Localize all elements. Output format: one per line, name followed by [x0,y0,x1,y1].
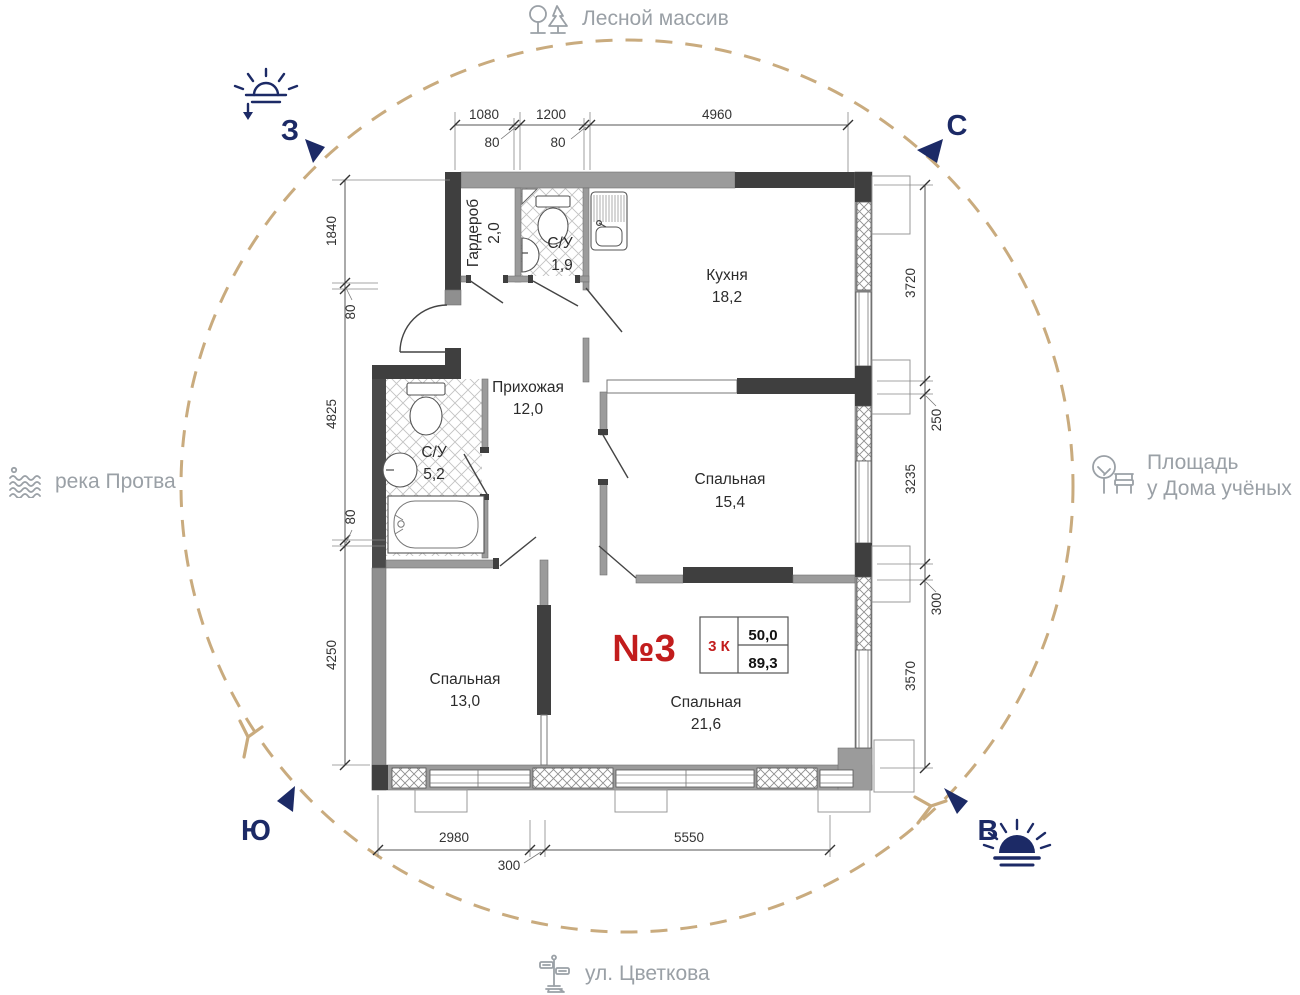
room-name: Кухня [706,267,747,284]
compass-arrow-south-icon [277,786,295,812]
dim-label: 5550 [674,830,704,845]
dim-label: 4250 [324,640,339,670]
compass-south-label: Ю [241,815,271,847]
dimensions-right: 3720 250 3235 300 3570 [874,180,944,773]
dim-label: 1200 [536,107,566,122]
room-area: 21,6 [691,716,721,733]
compass-north-label: С [947,110,968,142]
room-name: Спальная [695,471,766,488]
total-area: 89,3 [748,655,777,672]
river-icon [8,466,44,498]
landmark-label: Площадь у Дома учёных [1147,450,1292,503]
compass-east-label: В [978,815,999,847]
room-area: 2,0 [486,222,503,244]
bedroom-15-door [603,435,628,478]
toilet-bowl [410,397,442,435]
landmark-label: река Протва [55,469,176,495]
dim-label: 80 [484,135,499,150]
branch-icon [915,797,946,823]
bedroom-13-door [500,537,536,566]
landmark-east: Площадь у Дома учёных [1088,450,1292,503]
dim-label: 2980 [439,830,469,845]
dim-label: 250 [929,409,944,432]
room-name: С/У [421,444,447,461]
dim-label: 80 [550,135,565,150]
apartment-badge: №3 3 К 50,0 89,3 [612,617,788,673]
site-plan-page: З С Ю В [0,0,1300,995]
dim-label: 300 [929,593,944,616]
room-area: 18,2 [712,289,742,306]
dimensions-top: 1080 1200 4960 80 80 [450,107,853,172]
landmark-label: ул. Цветкова [585,961,710,987]
wardrobe-door [469,280,503,303]
room-area: 13,0 [450,693,481,710]
room-name: Прихожая [492,379,564,396]
dim-label: 80 [343,304,358,319]
dim-label: 1840 [324,216,339,246]
wc-small-door [533,281,578,306]
room-area: 15,4 [715,494,746,511]
compass-arrow-west-icon [305,139,325,163]
kitchen-sink [591,192,627,250]
dim-label: 300 [498,858,521,873]
room-name: Спальная [671,694,742,711]
toilet-tank [536,196,570,207]
dim-label: 4960 [702,107,732,122]
dim-label: 4825 [324,399,339,429]
landmark-south: ул. Цветкова [538,954,710,994]
toilet-tank [407,383,445,395]
dim-label: 1080 [469,107,499,122]
room-name: С/У [547,235,573,252]
dim-label: 3235 [903,464,918,494]
living-area: 50,0 [748,627,777,644]
dim-label: 80 [343,509,358,524]
room-area: 1,9 [551,257,573,274]
street-sign-icon [538,954,574,994]
room-name: Гардероб [465,199,482,267]
room-area: 12,0 [513,401,544,418]
compass: З С Ю В [235,69,1050,865]
kitchen-door [586,288,622,332]
floor-plan: Гардероб 2,0 С/У 1,9 Кухня 18,2 Прихожая… [324,107,944,873]
apartment-number: №3 [612,628,676,670]
park-bench-icon [1088,453,1136,499]
room-area: 5,2 [423,466,445,483]
room-name: Спальная [430,671,501,688]
dim-label: 3570 [903,661,918,691]
compass-west-label: З [281,115,299,147]
sunset-icon [235,69,297,120]
landmark-west: река Протва [8,466,176,498]
landmark-label: Лесной массив [582,6,729,32]
landmark-north: Лесной массив [527,2,729,36]
rooms-count: 3 К [708,638,731,655]
dim-label: 3720 [903,268,918,298]
entry-door [400,305,447,352]
forest-icon [527,2,571,36]
